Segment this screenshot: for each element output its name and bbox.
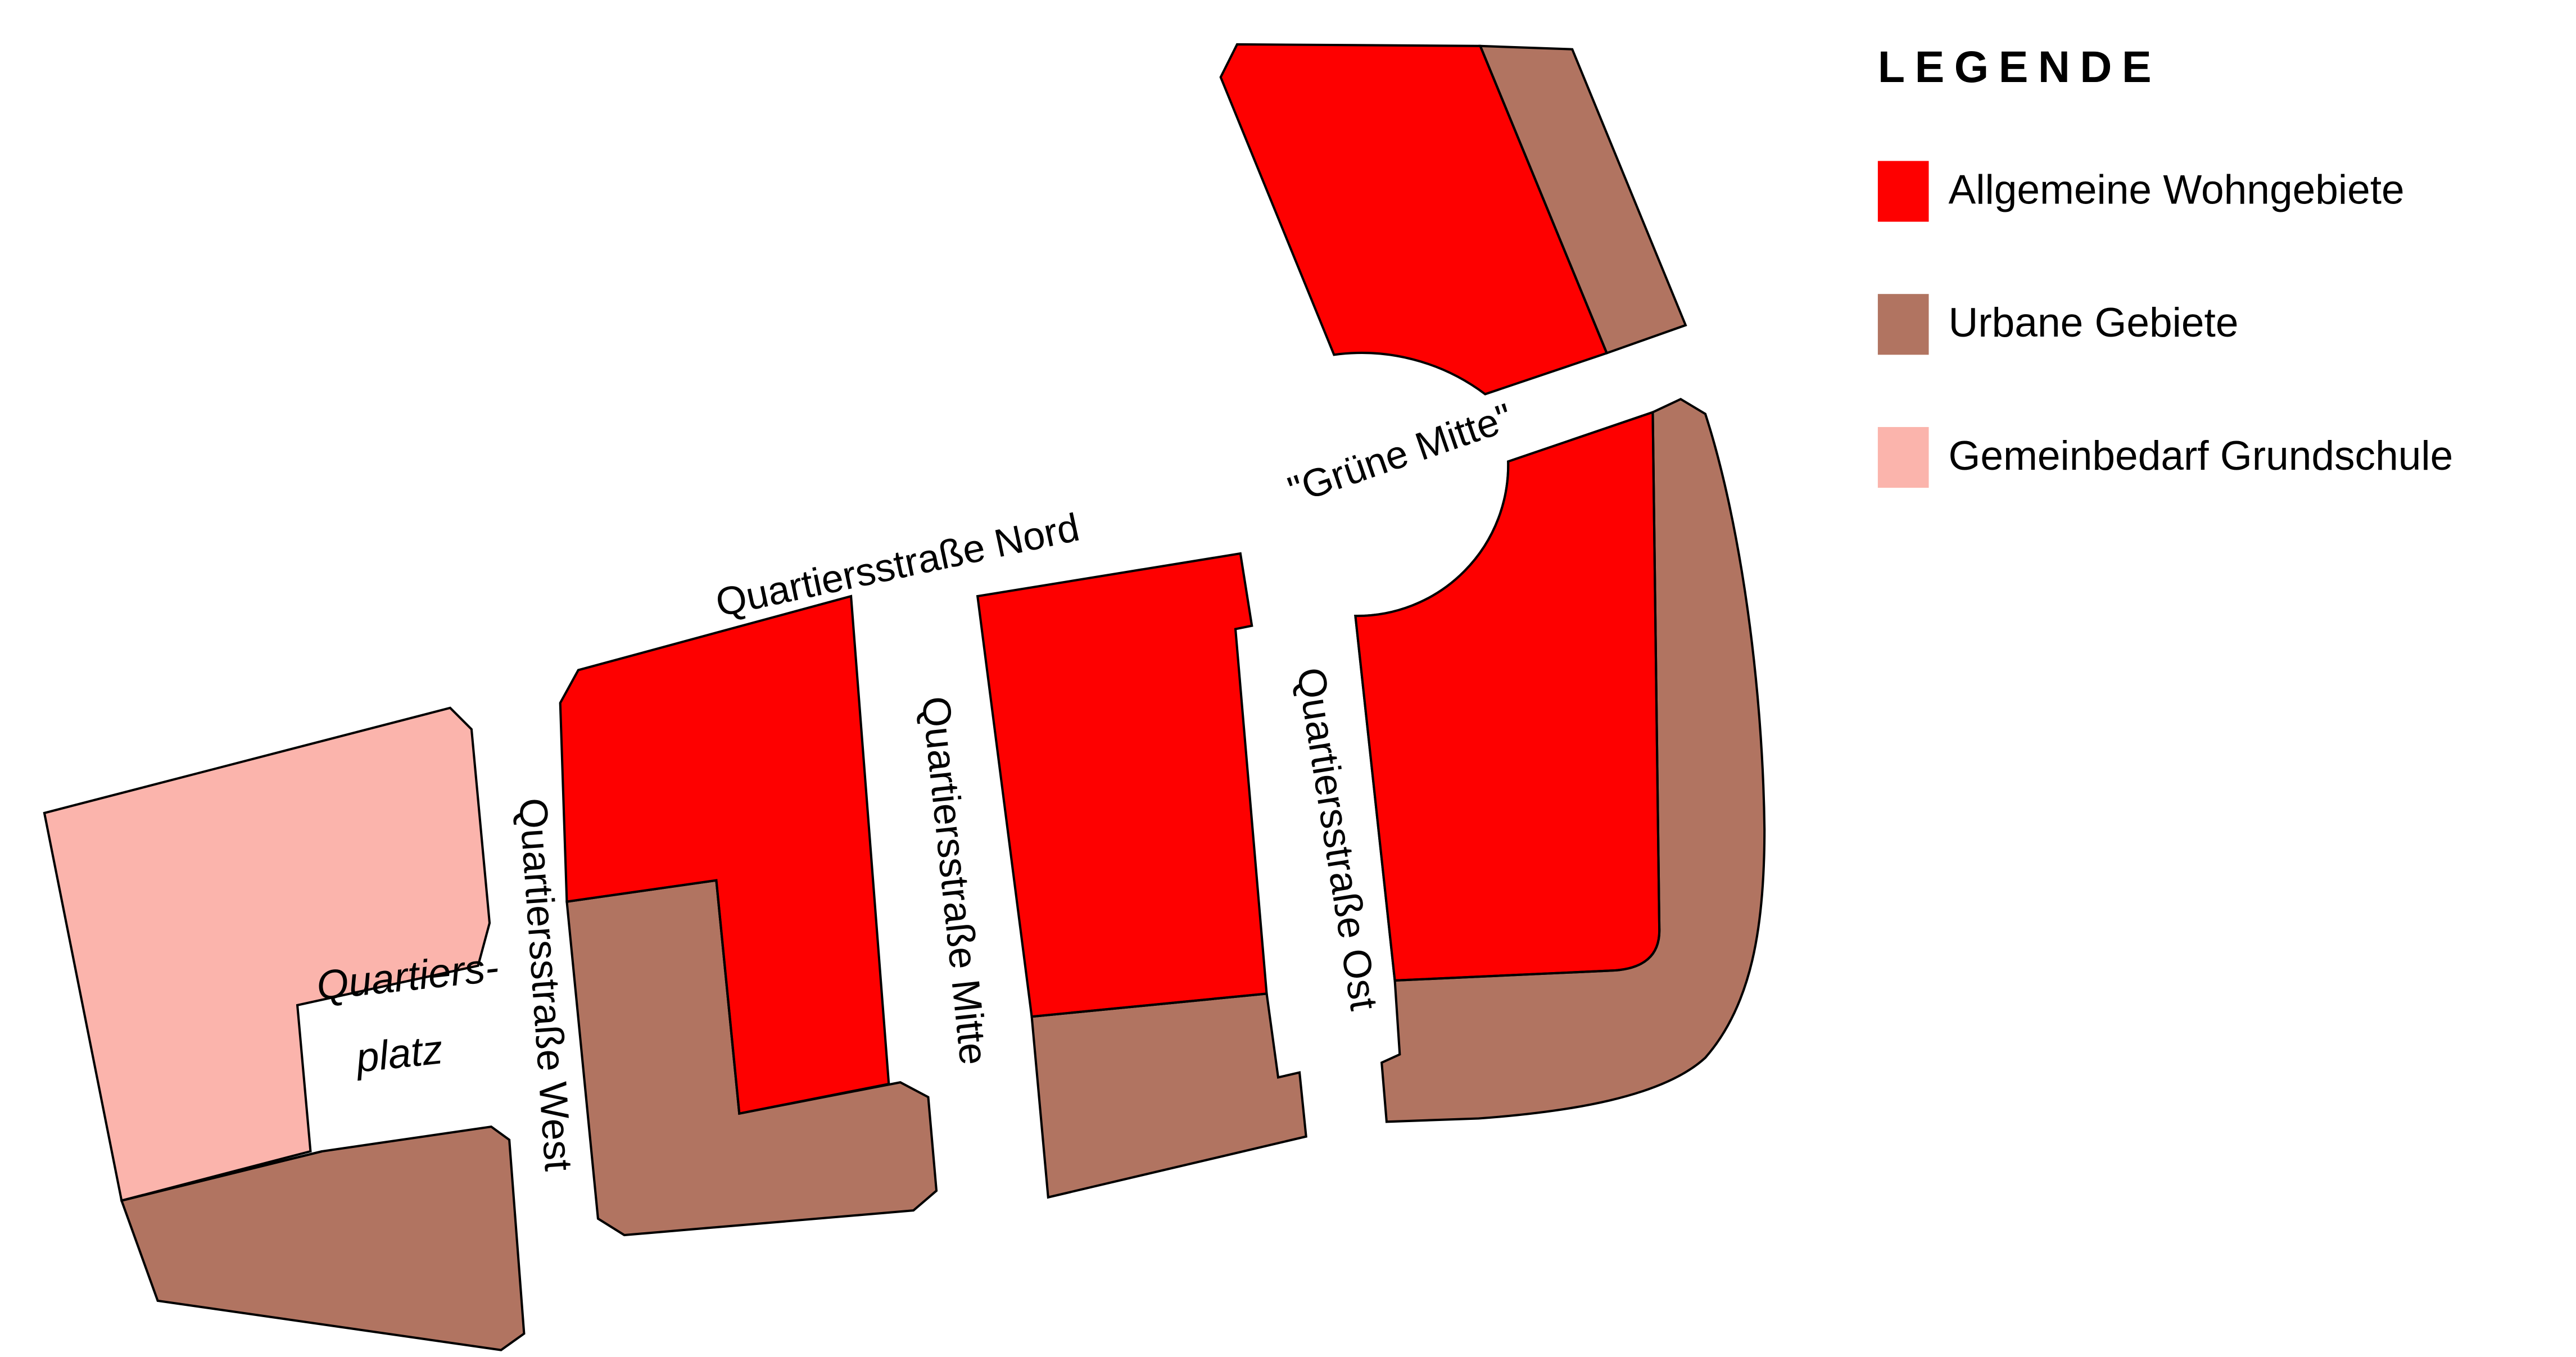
- legend-item-urban: Urbane Gebiete: [1878, 294, 2568, 355]
- label-quartiersplatz-line2: platz: [353, 1027, 445, 1081]
- residential-swatch: [1878, 161, 1929, 221]
- legend-item-label: Gemeinbedarf Grundschule: [1949, 427, 2453, 488]
- legend-title: LEGENDE: [1878, 46, 2568, 90]
- plan-viewport: Quartiersstraße Nord"Grüne Mitte"Quartie…: [0, 0, 2576, 1357]
- legend-item-label: Allgemeine Wohngebiete: [1949, 161, 2405, 221]
- legend-item-school: Gemeinbedarf Grundschule: [1878, 427, 2568, 488]
- label-gruene-mitte: "Grüne Mitte": [1283, 395, 1518, 512]
- area-urban-mid: [1032, 993, 1306, 1197]
- legend-item-residential: Allgemeine Wohngebiete: [1878, 161, 2568, 221]
- label-quartiersstrasse-mitte: Quartiersstraße Mitte: [913, 695, 995, 1067]
- urban-swatch: [1878, 294, 1929, 355]
- area-residential-mid: [977, 553, 1266, 1016]
- school-swatch: [1878, 427, 1929, 488]
- legend-item-label: Urbane Gebiete: [1949, 294, 2239, 355]
- legend: LEGENDE Allgemeine Wohngebiete Urbane Ge…: [1878, 46, 2568, 488]
- area-residential-east: [1355, 412, 1659, 981]
